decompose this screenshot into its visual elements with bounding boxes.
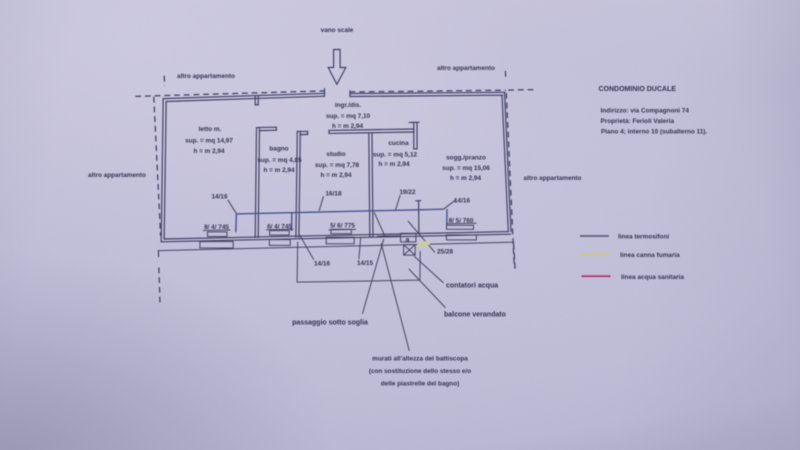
svg-text:a: a (406, 237, 410, 244)
svg-text:altro appartamento: altro appartamento (437, 65, 495, 72)
svg-text:passaggio sotto soglia: passaggio sotto soglia (292, 320, 368, 327)
svg-text:14/16: 14/16 (314, 261, 330, 268)
svg-text:cucina: cucina (388, 140, 409, 147)
svg-text:altro appartamento: altro appartamento (88, 172, 146, 179)
svg-text:Indirizzo: via Compagnoni 74: Indirizzo: via Compagnoni 74 (601, 108, 690, 115)
svg-text:studio: studio (326, 151, 345, 158)
svg-text:h = m 2,94: h = m 2,94 (320, 172, 352, 179)
svg-text:h = m 2,94: h = m 2,94 (378, 161, 410, 168)
svg-text:19/22: 19/22 (400, 189, 416, 196)
svg-text:murati all'altezza del battisc: murati all'altezza del battiscopa (372, 356, 468, 363)
svg-text:(con sostituzione dello stesso: (con sostituzione dello stesso e/o (369, 368, 471, 375)
svg-text:16/18: 16/18 (326, 190, 342, 197)
svg-text:Piano 4; interno 10 (subaltern: Piano 4; interno 10 (subalterno 11). (601, 129, 707, 136)
svg-text:altro appartamento: altro appartamento (524, 175, 582, 182)
svg-text:25/28: 25/28 (437, 249, 453, 256)
svg-text:h = m 2,94: h = m 2,94 (332, 123, 364, 130)
svg-text:vano scale: vano scale (321, 27, 354, 34)
svg-text:linea acqua sanitaria: linea acqua sanitaria (621, 274, 684, 281)
svg-text:sup. = mq 7,78: sup. = mq 7,78 (315, 162, 360, 169)
svg-text:bagno: bagno (269, 146, 288, 153)
svg-text:sup. = mq 4,85: sup. = mq 4,85 (257, 157, 302, 164)
svg-text:ingr./dis.: ingr./dis. (335, 102, 362, 109)
svg-text:sogg./pranzo: sogg./pranzo (446, 155, 486, 162)
svg-text:h = m 2,94: h = m 2,94 (193, 148, 225, 155)
svg-text:balcone verandato: balcone verandato (444, 312, 506, 319)
svg-text:altro appartamento: altro appartamento (177, 73, 235, 80)
svg-text:linea canna fumaria: linea canna fumaria (620, 252, 680, 259)
svg-text:sup. = mq 5,12: sup. = mq 5,12 (373, 152, 418, 159)
svg-text:delle piastrelle del bagno): delle piastrelle del bagno) (381, 381, 459, 388)
svg-text:sup. = mq 7,10: sup. = mq 7,10 (326, 113, 371, 120)
svg-text:sup. = mq 15,06: sup. = mq 15,06 (442, 165, 490, 172)
svg-text:CONDOMINIO DUCALE: CONDOMINIO DUCALE (599, 86, 677, 93)
svg-text:letto m.: letto m. (199, 126, 222, 133)
svg-text:14/16: 14/16 (212, 194, 228, 201)
svg-text:5/ 6/ 775: 5/ 6/ 775 (330, 223, 355, 230)
svg-text:14/15: 14/15 (357, 260, 373, 267)
svg-text:sup. = mq 14,97: sup. = mq 14,97 (185, 138, 233, 145)
svg-text:contatori acqua: contatori acqua (446, 283, 498, 290)
svg-text:Proprietà: Ferioli Valeria: Proprietà: Ferioli Valeria (601, 118, 675, 125)
svg-text:h = m 2,94: h = m 2,94 (263, 167, 295, 174)
svg-text:14/16: 14/16 (454, 198, 470, 205)
svg-text:h = m 2,94: h = m 2,94 (450, 175, 482, 182)
svg-text:linea termosifoni: linea termosifoni (618, 234, 669, 241)
